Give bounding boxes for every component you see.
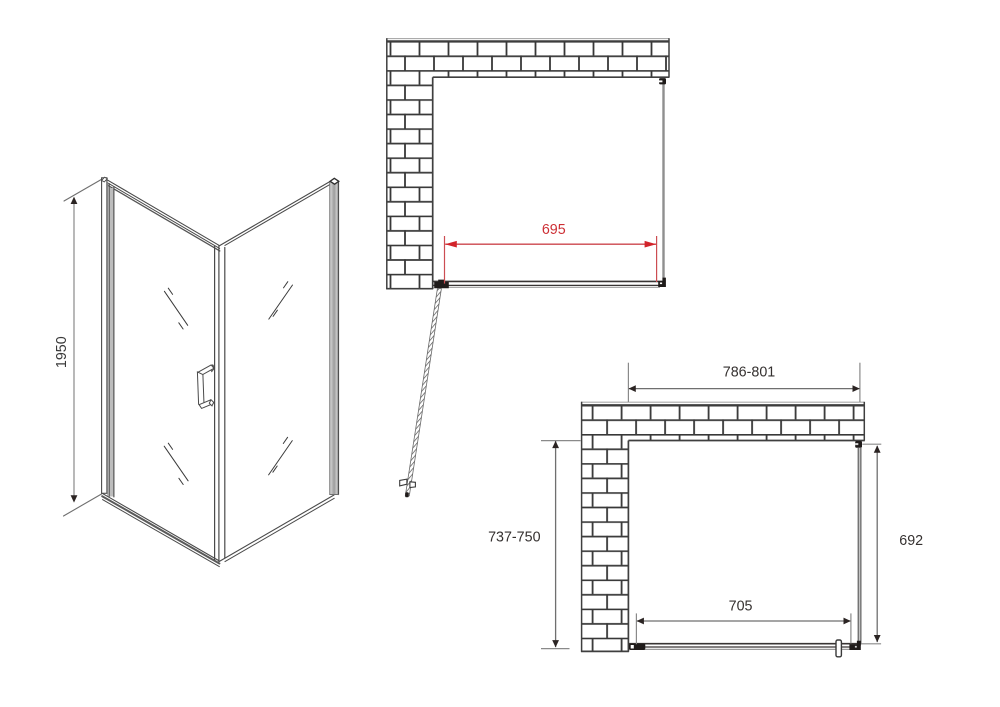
svg-text:1950: 1950 [54,336,70,368]
svg-text:786-801: 786-801 [723,364,776,380]
svg-text:692: 692 [899,533,923,549]
svg-text:737-750: 737-750 [488,529,541,545]
svg-text:695: 695 [542,222,566,238]
svg-text:705: 705 [729,598,753,614]
